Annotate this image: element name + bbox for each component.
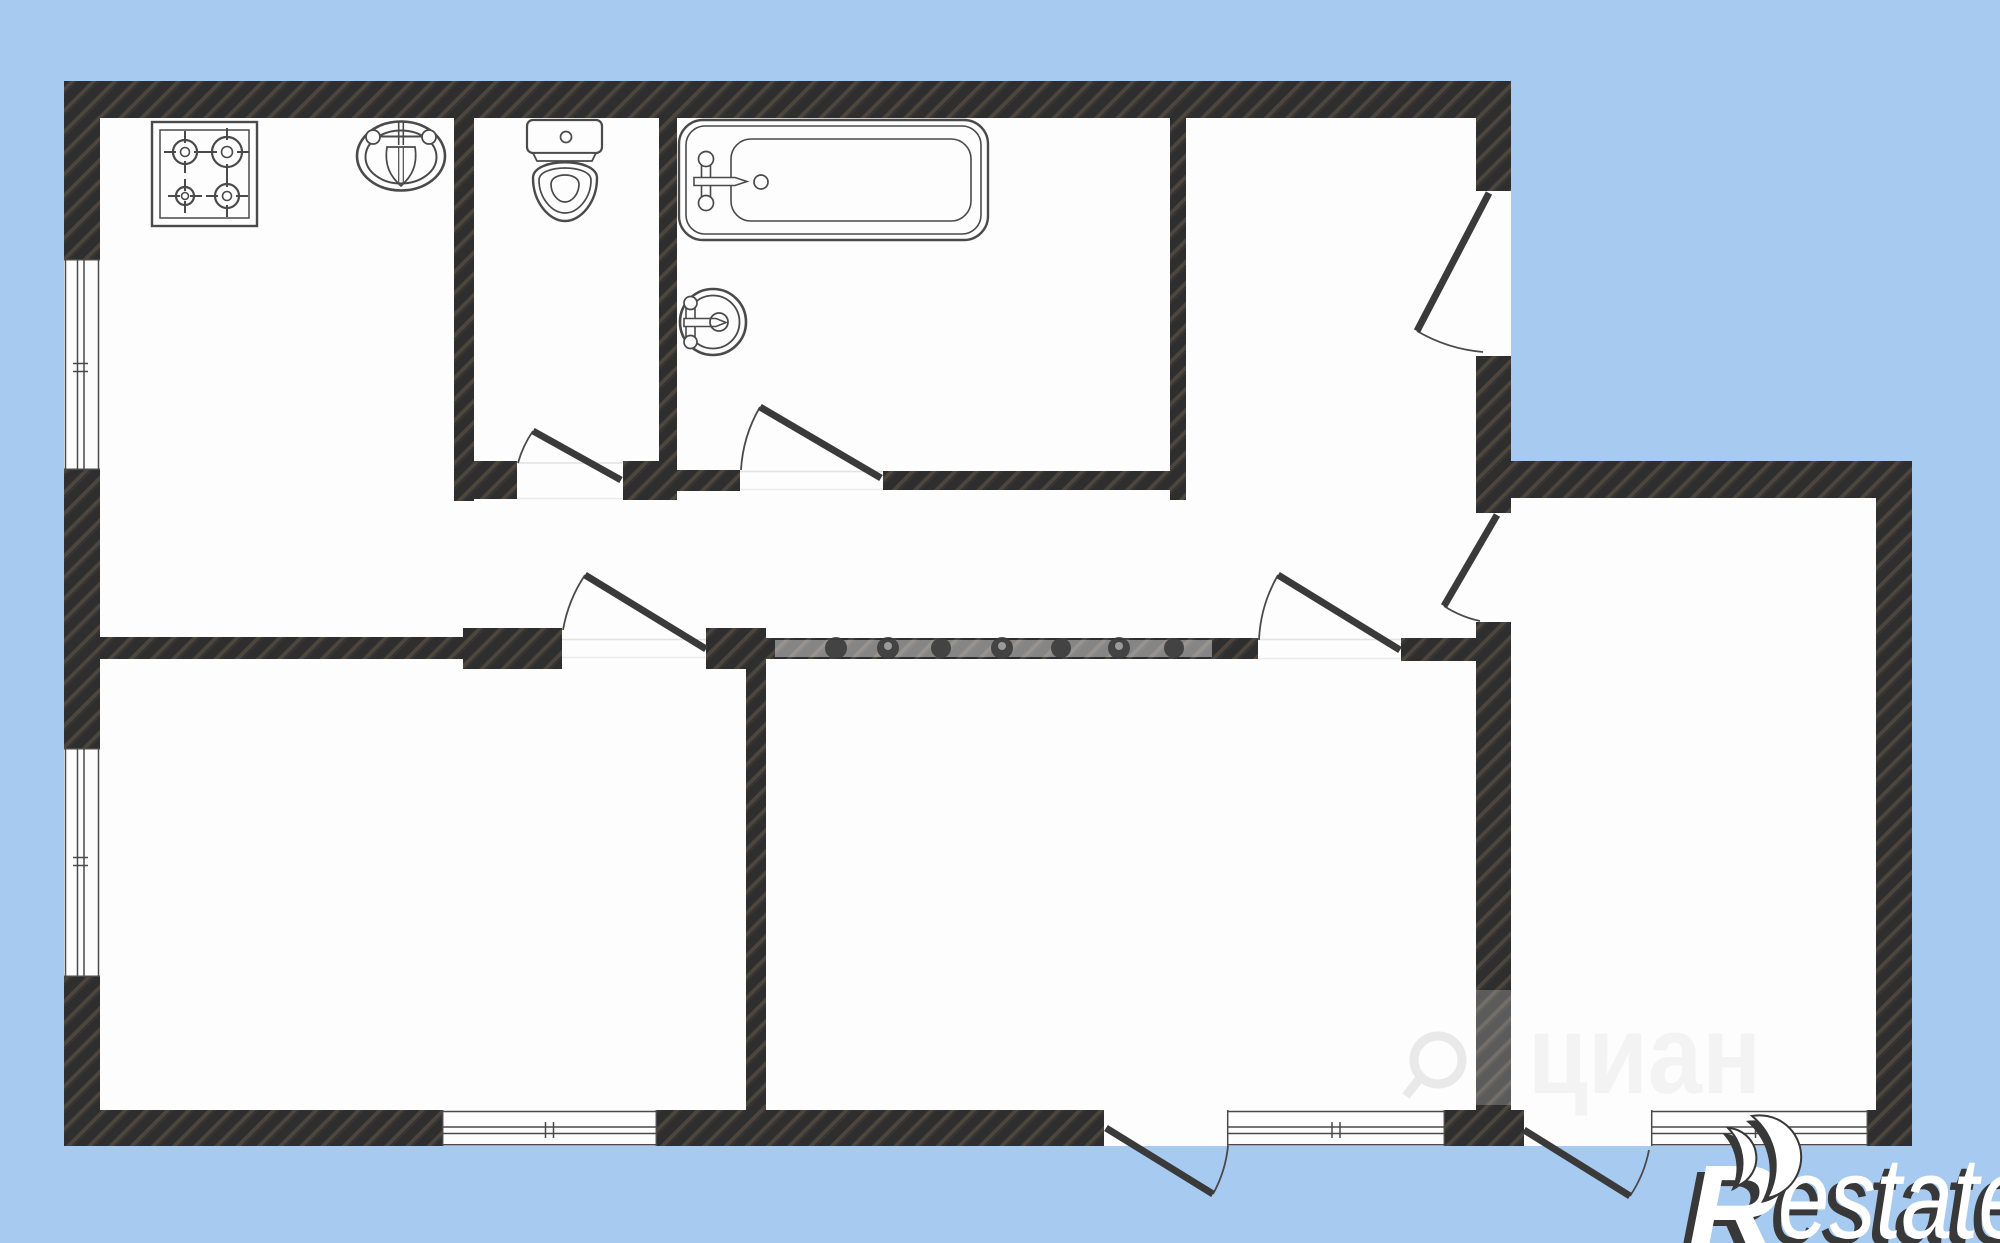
svg-text:estate: estate (1778, 1133, 2000, 1243)
svg-text:R: R (1687, 1139, 1779, 1243)
svg-text:циан: циан (1528, 992, 1761, 1117)
